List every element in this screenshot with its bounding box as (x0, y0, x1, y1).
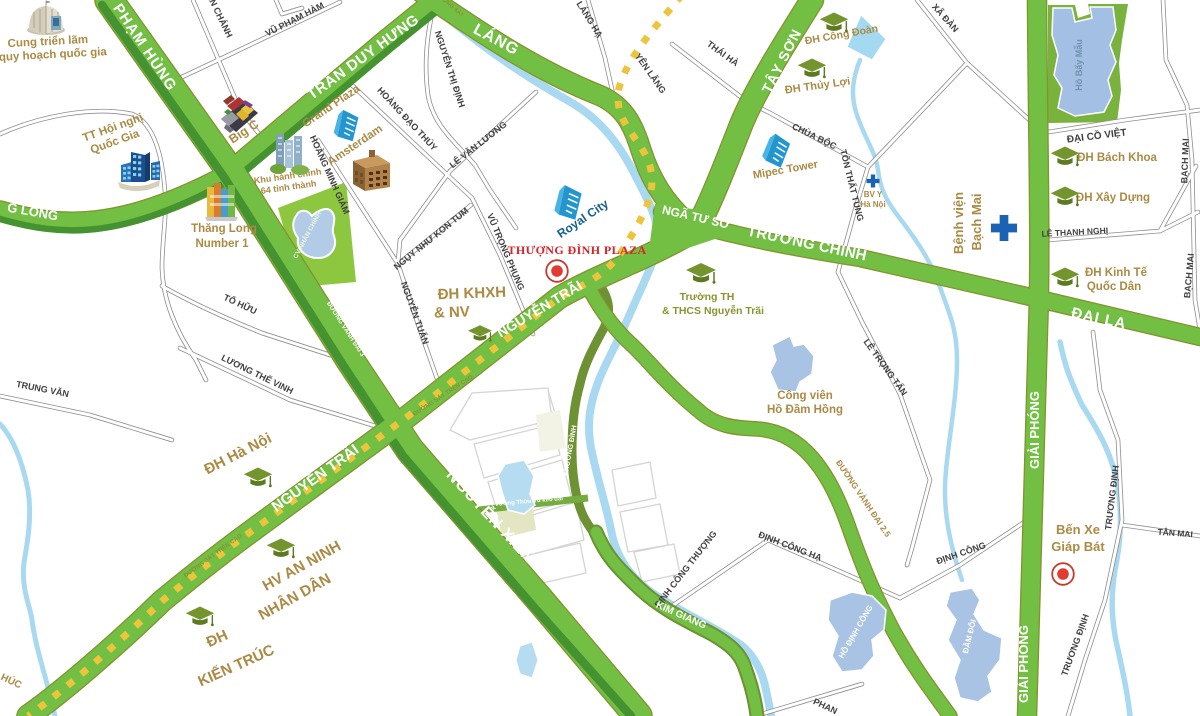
svg-text:Hồ Bẩy Mẫu: Hồ Bẩy Mẫu (1074, 39, 1084, 91)
svg-text:Giáp Bát: Giáp Bát (1051, 539, 1105, 554)
svg-text:Trường TH: Trường TH (680, 291, 735, 303)
svg-text:GIẢI PHÓNG: GIẢI PHÓNG (1016, 625, 1031, 703)
svg-text:Quốc Dân: Quốc Dân (1087, 281, 1141, 293)
svg-text:ĐH Bách Khoa: ĐH Bách Khoa (1077, 152, 1157, 164)
svg-text:& THCS Nguyễn Trãi: & THCS Nguyễn Trãi (662, 304, 764, 317)
svg-text:BẠCH MAI: BẠCH MAI (1179, 138, 1191, 183)
svg-text:Hồ Đầm Hồng: Hồ Đầm Hồng (767, 404, 843, 416)
svg-text:Hà Nội: Hà Nội (860, 200, 885, 209)
svg-text:Number 1: Number 1 (195, 238, 249, 250)
svg-text:ĐH Xây Dựng: ĐH Xây Dựng (1076, 192, 1150, 204)
svg-text:BV Y: BV Y (864, 190, 883, 199)
svg-text:ĐH KHXH: ĐH KHXH (437, 284, 506, 303)
svg-text:& NV: & NV (434, 303, 470, 321)
svg-text:Bệnh viện: Bệnh viện (951, 192, 966, 254)
svg-text:Công viên: Công viên (777, 390, 833, 402)
svg-text:THƯỢNG ĐÌNH PLAZA: THƯỢNG ĐÌNH PLAZA (507, 243, 646, 257)
svg-text:Bạch Mai: Bạch Mai (969, 193, 984, 250)
svg-text:GIẢI PHÓNG: GIẢI PHÓNG (1027, 391, 1042, 469)
svg-text:Bến Xe: Bến Xe (1056, 522, 1100, 537)
svg-text:ĐH Kinh Tế: ĐH Kinh Tế (1085, 267, 1148, 279)
svg-text:Thăng Long: Thăng Long (191, 223, 257, 235)
